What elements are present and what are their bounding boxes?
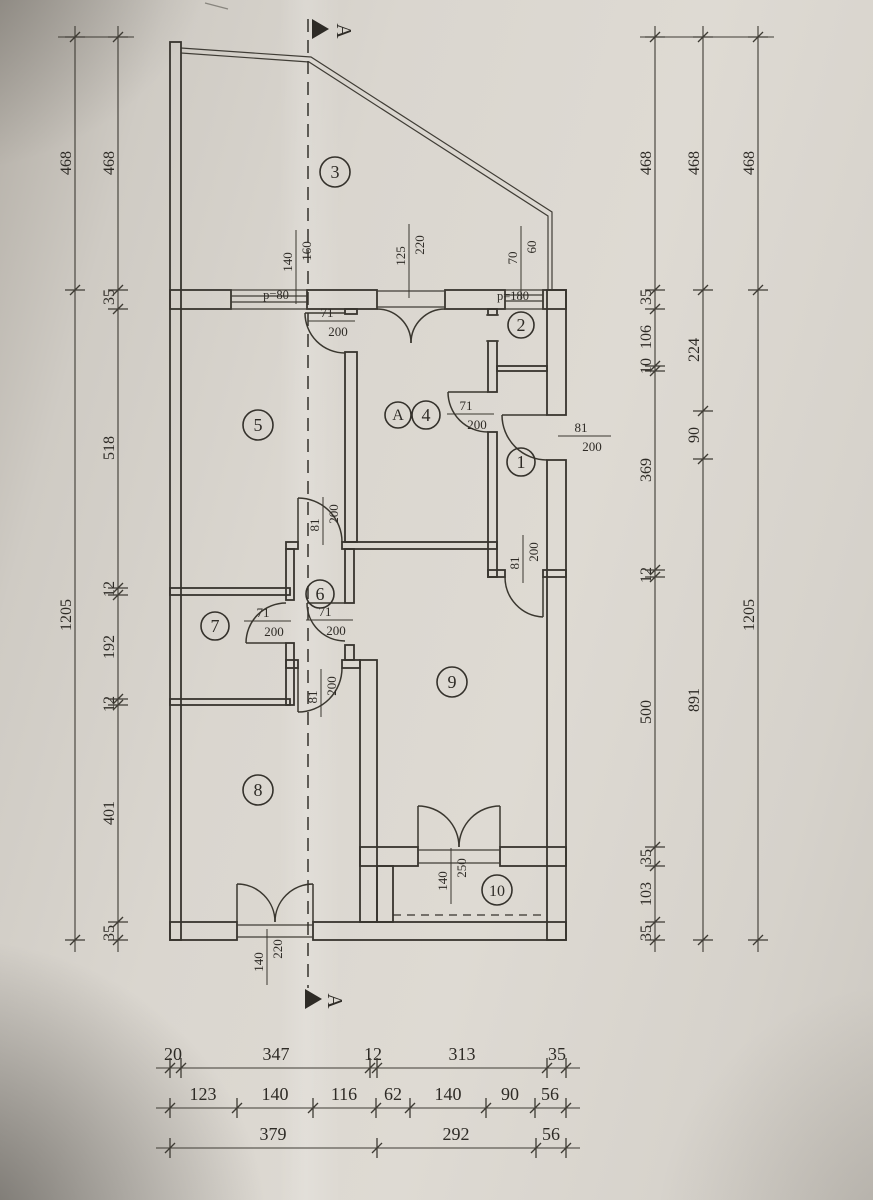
- wall-4-1: [488, 432, 497, 577]
- svg-text:468: 468: [58, 151, 75, 175]
- room-label-5: 5: [243, 410, 273, 440]
- svg-text:1: 1: [517, 452, 526, 472]
- svg-text:35: 35: [548, 1044, 566, 1064]
- dim-bottom-row1: 20 347 12 313 35: [156, 1044, 580, 1078]
- svg-text:103: 103: [638, 882, 655, 906]
- room-label-7: 7: [201, 612, 229, 640]
- wall-6-9-b: [345, 645, 354, 660]
- dim-left-outer: 468 1205: [58, 26, 85, 952]
- svg-text:71: 71: [321, 305, 334, 320]
- svg-text:401: 401: [101, 801, 118, 825]
- svg-text:200: 200: [582, 439, 602, 454]
- room-label-1: 1: [507, 448, 535, 476]
- svg-text:125: 125: [393, 246, 408, 266]
- svg-text:90: 90: [501, 1084, 519, 1104]
- svg-text:313: 313: [449, 1044, 476, 1064]
- svg-text:292: 292: [443, 1124, 470, 1144]
- dim-right-inner: 468 35 106 10 369 12 500 35 103 35: [638, 26, 665, 952]
- dim-right-middle: 468 224 90 891: [686, 26, 713, 952]
- svg-text:200: 200: [326, 623, 346, 638]
- room-labels: 3 5 A 4 2 1 6 7 9 8 10: [201, 157, 535, 905]
- room-label-3: 3: [320, 157, 350, 187]
- paper-mark: [205, 3, 228, 9]
- svg-text:1205: 1205: [58, 599, 75, 631]
- wall-2-1: [497, 366, 547, 371]
- label-balcony-room4: 125 220: [393, 224, 427, 298]
- svg-text:3: 3: [331, 162, 340, 182]
- wall-10-left: [377, 866, 393, 922]
- svg-text:71: 71: [257, 605, 270, 620]
- svg-text:81: 81: [305, 691, 320, 704]
- svg-text:140: 140: [262, 1084, 289, 1104]
- door-8-exterior-double: [237, 884, 313, 937]
- svg-text:4: 4: [422, 405, 431, 425]
- wall-5-4-stub: [345, 309, 357, 314]
- room-label-8: 8: [243, 775, 273, 805]
- svg-text:140: 140: [435, 871, 450, 891]
- wall-9-10-a: [360, 847, 418, 866]
- svg-text:106: 106: [638, 325, 655, 349]
- svg-text:140: 140: [251, 952, 266, 972]
- label-door-9-10: 140 250: [435, 848, 469, 904]
- room-label-10: 10: [482, 875, 512, 905]
- svg-text:140: 140: [280, 252, 295, 272]
- wall-5-4: [345, 352, 357, 542]
- svg-text:2: 2: [517, 315, 526, 335]
- room-label-4: 4: [412, 401, 440, 429]
- wall-top-2: [307, 290, 377, 309]
- svg-text:160: 160: [299, 241, 314, 261]
- svg-text:12: 12: [364, 1044, 382, 1064]
- opening-labels: 140 160 p=80 125 220 70 60 p=180 71 200 …: [244, 224, 611, 985]
- svg-text:9: 9: [448, 672, 457, 692]
- wall-6-9-a: [345, 549, 354, 603]
- room-label-9: 9: [437, 667, 467, 697]
- svg-text:56: 56: [542, 1124, 560, 1144]
- wall-4-2-a: [488, 309, 497, 315]
- svg-text:62: 62: [384, 1084, 402, 1104]
- svg-text:1205: 1205: [741, 599, 758, 631]
- label-door-4-1: 71 200: [447, 398, 494, 432]
- svg-text:200: 200: [326, 504, 341, 524]
- svg-text:81: 81: [575, 420, 588, 435]
- svg-text:220: 220: [412, 235, 427, 255]
- label-door-5-hall: 71 200: [308, 305, 355, 339]
- dim-left-inner: 468 35 518 12 192 12 401 35: [101, 26, 128, 952]
- svg-text:7: 7: [211, 616, 220, 636]
- wall-left: [170, 42, 181, 940]
- door-room2-opening: [486, 315, 499, 341]
- svg-text:35: 35: [638, 849, 655, 865]
- wall-7-8: [170, 699, 290, 705]
- svg-text:200: 200: [264, 624, 284, 639]
- svg-text:891: 891: [686, 688, 703, 712]
- svg-text:35: 35: [638, 925, 655, 941]
- svg-text:468: 468: [686, 151, 703, 175]
- label-door-hall-6: 81 200: [307, 497, 341, 545]
- svg-text:60: 60: [524, 241, 539, 254]
- svg-text:35: 35: [101, 289, 118, 305]
- svg-text:140: 140: [435, 1084, 462, 1104]
- svg-text:200: 200: [324, 676, 339, 696]
- svg-text:500: 500: [638, 700, 655, 724]
- svg-text:6: 6: [316, 584, 325, 604]
- svg-text:220: 220: [270, 939, 285, 959]
- wall-6-8-a: [286, 660, 298, 668]
- label-door-1-9: 81 200: [507, 535, 541, 583]
- walls: [170, 42, 566, 940]
- svg-text:116: 116: [331, 1084, 357, 1104]
- svg-text:518: 518: [101, 436, 118, 460]
- section-arrow-bottom: [305, 989, 322, 1009]
- wall-9-10-b: [500, 847, 566, 866]
- section-arrow-top: [312, 19, 329, 39]
- svg-text:468: 468: [101, 151, 118, 175]
- svg-text:A: A: [392, 407, 404, 424]
- svg-text:56: 56: [541, 1084, 559, 1104]
- svg-text:192: 192: [101, 635, 118, 659]
- svg-text:20: 20: [164, 1044, 182, 1064]
- svg-text:90: 90: [686, 427, 703, 443]
- svg-text:347: 347: [263, 1044, 290, 1064]
- dim-bottom-row3: 379 292 56: [156, 1124, 580, 1158]
- svg-text:71: 71: [319, 604, 332, 619]
- svg-text:468: 468: [638, 151, 655, 175]
- wall-5-7: [170, 588, 290, 595]
- floor-plan-photo: A A 3 5 A 4 2 1 6 7 9 8 10 140 160 p=80 …: [0, 0, 873, 1200]
- section-label-bottom: A: [323, 993, 347, 1009]
- room-label-2: 2: [508, 312, 534, 338]
- svg-text:8: 8: [254, 780, 263, 800]
- dim-right-outer: 468 1205: [741, 26, 768, 952]
- wall-hall6-b: [342, 542, 497, 549]
- section-label-top: A: [332, 23, 356, 39]
- svg-text:369: 369: [638, 458, 655, 482]
- wall-6-8-b: [342, 660, 360, 668]
- wall-right-lower: [547, 460, 566, 940]
- wall-bottom-left: [170, 922, 237, 940]
- door-entry: [502, 415, 564, 460]
- svg-text:468: 468: [741, 151, 758, 175]
- terrace-boundary: [181, 48, 552, 290]
- svg-text:5: 5: [254, 415, 263, 435]
- wall-4-2-b: [488, 341, 497, 392]
- door-9-10-double: [418, 806, 500, 863]
- room-label-A: A: [385, 402, 411, 428]
- door-1-9: [505, 577, 543, 617]
- svg-text:123: 123: [190, 1084, 217, 1104]
- svg-text:250: 250: [454, 858, 469, 878]
- wall-top-1: [170, 290, 231, 309]
- svg-text:379: 379: [260, 1124, 287, 1144]
- svg-text:224: 224: [686, 338, 703, 362]
- wall-6-7-b: [286, 643, 294, 705]
- svg-text:200: 200: [526, 542, 541, 562]
- floor-plan-drawing: A A 3 5 A 4 2 1 6 7 9 8 10 140 160 p=80 …: [0, 0, 873, 1200]
- label-sill-room2: p=180: [497, 289, 529, 303]
- svg-text:81: 81: [307, 519, 322, 532]
- svg-text:70: 70: [505, 252, 520, 265]
- wall-8-9: [360, 660, 377, 922]
- dimension-lines: 468 1205 468 35 518 12 192 12 401 35 468…: [58, 26, 774, 1158]
- svg-text:200: 200: [467, 417, 487, 432]
- svg-text:35: 35: [101, 925, 118, 941]
- svg-text:10: 10: [489, 883, 505, 900]
- svg-text:81: 81: [507, 557, 522, 570]
- balcony-door-room4: [377, 290, 445, 343]
- label-door-6-9: 71 200: [306, 604, 353, 638]
- svg-text:35: 35: [638, 289, 655, 305]
- svg-text:71: 71: [460, 398, 473, 413]
- wall-hall6-a: [286, 542, 298, 549]
- label-sill-room5: p=80: [263, 288, 289, 302]
- label-door-entry: 81 200: [558, 420, 611, 454]
- wall-bottom-right: [313, 922, 566, 940]
- dim-bottom-row2: 123 140 116 62 140 90 56: [156, 1084, 580, 1118]
- svg-text:200: 200: [328, 324, 348, 339]
